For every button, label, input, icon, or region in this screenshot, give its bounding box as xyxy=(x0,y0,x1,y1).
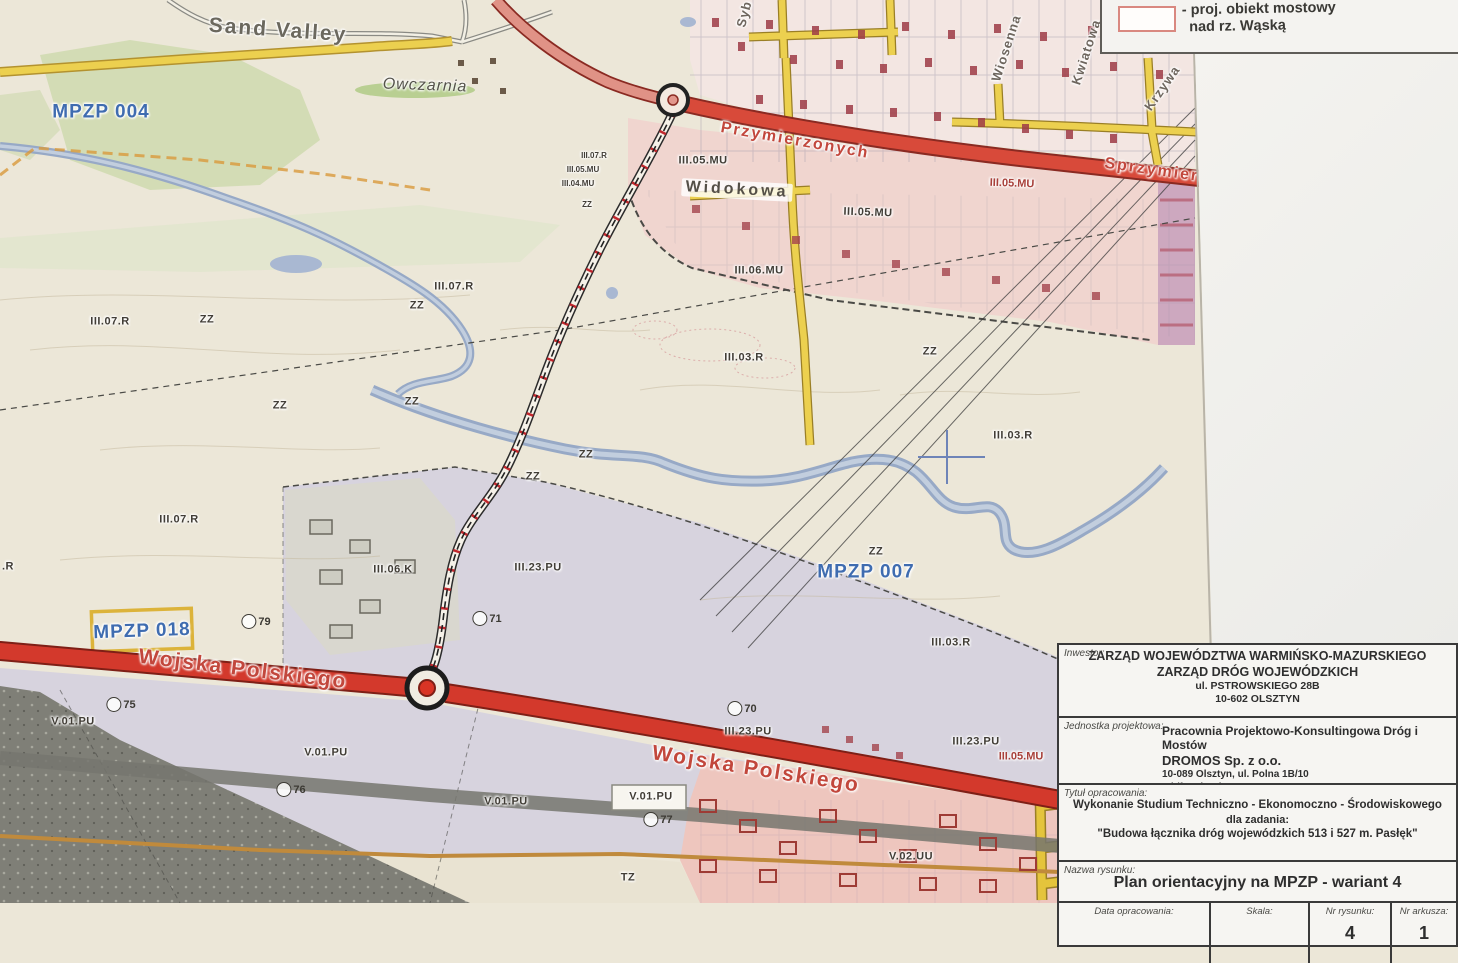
label-box xyxy=(612,785,686,810)
title-block-study-title-row: Tytuł opracowania: Wykonanie Studium Tec… xyxy=(1059,785,1456,862)
design-unit-label: Jednostka projektowa: xyxy=(1064,721,1164,732)
title-block: Inwestor: ZARZĄD WOJEWÓDZTWA WARMIŃSKO-M… xyxy=(1057,643,1458,947)
drawing-name-label: Nazwa rysunku: xyxy=(1064,865,1135,876)
scanned-map-page: { "legend": { "bridge_item_line1": "- pr… xyxy=(0,0,1458,903)
study-title-line: Wykonanie Studium Techniczno - Ekonomocz… xyxy=(1059,798,1456,813)
drawing-name-value: Plan orientacyjny na MPZP - wariant 4 xyxy=(1059,874,1456,892)
map-legend: - proj. obiekt mostowy nad rz. Wąską xyxy=(1100,0,1458,54)
bridge-legend-swatch xyxy=(1118,6,1176,32)
study-title-label: Tytuł opracowania: xyxy=(1064,788,1147,799)
legend-bridge-line1: - proj. obiekt mostowy xyxy=(1182,0,1336,19)
footer-date-cell: Data opracowania: xyxy=(1059,903,1209,963)
design-unit-line: 10-089 Olsztyn, ul. Polna 1B/10 xyxy=(1162,769,1456,782)
survey-cross xyxy=(918,430,985,484)
drawing-no-value: 4 xyxy=(1310,923,1390,944)
scrub-contours xyxy=(633,321,795,378)
investor-line: 10-602 OLSZTYN xyxy=(1059,693,1456,706)
scale-label: Skala: xyxy=(1211,903,1308,917)
study-title-line: dla zadania: xyxy=(1059,813,1456,827)
investor-line: ZARZĄD WOJEWÓDZTWA WARMIŃSKO-MAZURSKIEGO xyxy=(1059,649,1456,665)
investor-line: ul. PSTROWSKIEGO 28B xyxy=(1059,680,1456,693)
study-title-line: "Budowa łącznika dróg wojewódzkich 513 i… xyxy=(1059,827,1456,842)
investor-line: ZARZĄD DRÓG WOJEWÓDZKICH xyxy=(1059,665,1456,681)
footer-sheet-no-cell: Nr arkusza: 1 xyxy=(1390,903,1456,963)
investor-label: Inwestor: xyxy=(1064,648,1105,659)
footer-drawing-no-cell: Nr rysunku: 4 xyxy=(1308,903,1390,963)
sheet-no-value: 1 xyxy=(1392,923,1456,944)
design-unit-line: DROMOS Sp. z o.o. xyxy=(1162,753,1456,769)
paper-margin xyxy=(1195,50,1458,647)
drawing-no-label: Nr rysunku: xyxy=(1310,903,1390,917)
sheet-no-label: Nr arkusza: xyxy=(1392,903,1456,917)
mpzp018-frame xyxy=(91,608,192,651)
legend-bridge-line2: nad rz. Wąską xyxy=(1182,16,1336,35)
title-block-footer-row: Data opracowania: Skala: Nr rysunku: 4 N… xyxy=(1059,903,1456,963)
date-label: Data opracowania: xyxy=(1059,903,1209,917)
roundabout-south xyxy=(407,668,447,708)
title-block-design-unit-row: Jednostka projektowa: Pracownia Projekto… xyxy=(1059,718,1456,785)
footer-scale-cell: Skala: xyxy=(1209,903,1308,963)
design-unit-line: Pracownia Projektowo-Konsultingowa Dróg … xyxy=(1162,724,1456,753)
roundabout-north xyxy=(658,85,688,115)
title-block-drawing-name-row: Nazwa rysunku: Plan orientacyjny na MPZP… xyxy=(1059,862,1456,903)
title-block-investor-row: Inwestor: ZARZĄD WOJEWÓDZTWA WARMIŃSKO-M… xyxy=(1059,645,1456,718)
